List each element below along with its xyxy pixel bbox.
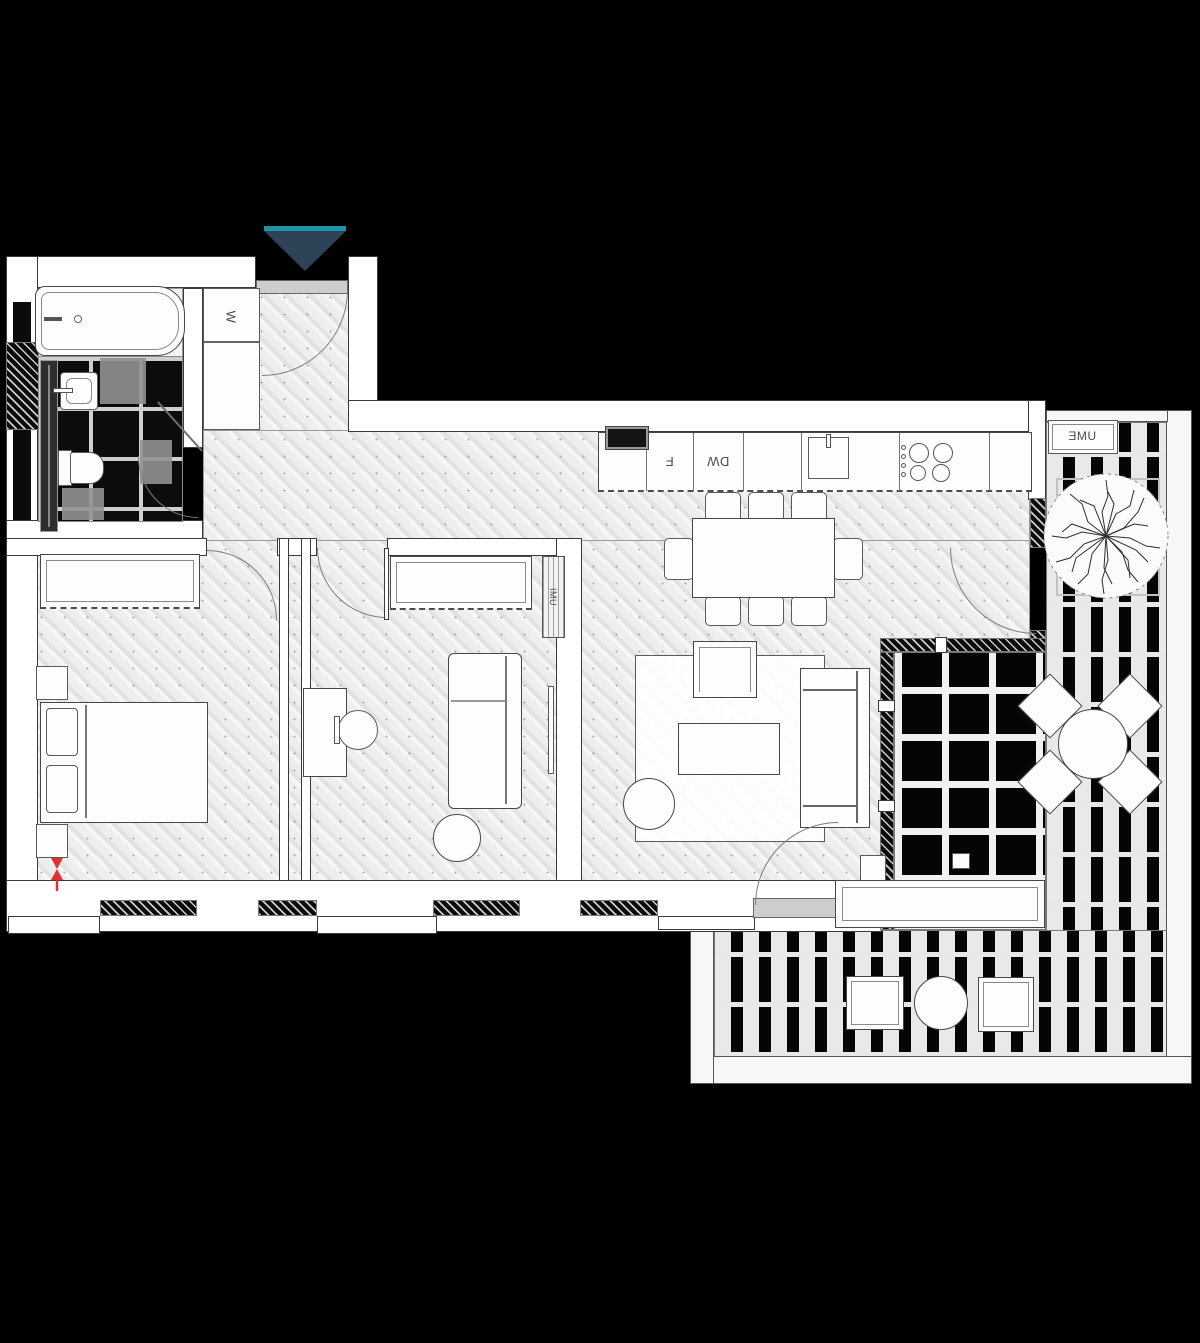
counter-divider: [743, 433, 744, 491]
fridge-label: F: [646, 441, 693, 483]
sofa: [800, 668, 870, 828]
bathroom-gray-tile: [100, 358, 146, 404]
nightstand: [36, 824, 68, 858]
glazing-living-south: [880, 638, 1046, 652]
cooktop-burner: [909, 443, 929, 463]
bolster-line: [505, 656, 507, 804]
kitchen-faucet-icon: [826, 434, 831, 448]
bathroom-sink: [60, 372, 98, 410]
dishwasher-label: DW: [693, 441, 743, 483]
kitchen-sink: [808, 437, 849, 479]
cooktop-knob: [901, 445, 906, 450]
sill-bottom-3: [658, 916, 755, 930]
cooktop-knob: [901, 454, 906, 459]
duct-label: IMU: [543, 577, 563, 617]
single-bed: [448, 653, 522, 809]
pouf: [433, 814, 481, 862]
dining-chair: [748, 596, 784, 626]
closet-label: W: [210, 290, 254, 345]
sofa-armrest-line: [803, 805, 856, 807]
bench-support: [952, 853, 970, 869]
counter-divider: [801, 433, 802, 491]
bedroom2-door-leaf: [384, 548, 389, 620]
bathtub-faucet-icon: [44, 317, 62, 321]
desk-chair-back: [334, 716, 340, 744]
double-bed: [40, 702, 208, 823]
ume-label: UME: [1049, 421, 1115, 451]
sill-bottom-2: [317, 916, 437, 934]
sink-faucet-icon: [53, 388, 73, 393]
counter-divider: [989, 433, 990, 491]
window-left: [6, 342, 40, 430]
terrace-stool: [846, 976, 904, 1030]
entry-arrow-icon: [264, 231, 346, 271]
dining-chair: [664, 538, 694, 580]
cooktop-burner: [933, 443, 953, 463]
mullion-2: [878, 800, 895, 812]
towel-radiator-line: [48, 365, 50, 527]
dining-table: [692, 518, 835, 598]
wall-bedroom-divider-left: [279, 538, 289, 908]
kitchen-counter: F DW: [598, 432, 1032, 492]
coffee-table: [678, 723, 780, 775]
sofa-backrest-line: [856, 671, 858, 823]
terrace-low-table: [914, 976, 968, 1030]
wall-top-left: [6, 256, 256, 288]
hall-closet: W: [203, 288, 260, 430]
mullion-1: [878, 700, 895, 712]
cooktop-burner: [932, 464, 950, 482]
glazing-terrace-upper: [1030, 498, 1046, 548]
towel-radiator: [40, 360, 58, 532]
wall-bathroom-right-upper: [183, 288, 203, 448]
duct-shaft: IMU: [542, 556, 565, 638]
wall-kitchen-top: [348, 400, 1045, 432]
counter-divider: [899, 433, 900, 491]
dining-chair: [791, 596, 827, 626]
window-bottom-4: [580, 900, 658, 916]
mattress-line: [451, 700, 505, 702]
bedroom1-wardrobe: [40, 554, 200, 609]
side-table: [623, 778, 675, 830]
kitchen-hood-box: [606, 427, 648, 449]
sofa-armrest-line: [803, 689, 856, 691]
dining-chair: [705, 596, 741, 626]
bench-support: [860, 855, 886, 881]
pillow: [46, 765, 78, 813]
cooktop-knob: [901, 472, 906, 477]
duvet-line: [85, 705, 87, 818]
ume-unit-box: UME: [1048, 420, 1118, 454]
floor-plan: W F DW: [0, 0, 1200, 1343]
bathtub-rim: [41, 292, 179, 350]
bathroom-gray-tile: [62, 488, 104, 520]
wall-bedroom2-top: [387, 538, 580, 556]
cooktop-knob: [901, 463, 906, 468]
dining-chair: [833, 538, 863, 580]
armchair: [693, 641, 757, 698]
mullion-3: [935, 637, 947, 653]
terrace-parapet-right: [1166, 410, 1192, 1084]
sill-bottom-1: [8, 916, 100, 934]
bathtub-drain: [74, 315, 82, 323]
desk-chair: [338, 710, 378, 750]
window-bottom-1: [100, 900, 197, 916]
cooktop-burner: [910, 465, 926, 481]
tree-trellis: [1056, 478, 1160, 596]
toilet-bowl: [70, 452, 104, 484]
mirror: [548, 686, 554, 774]
window-bottom-2: [258, 900, 317, 916]
terrace-parapet-bottom: [690, 1056, 1192, 1084]
terrace-round-table: [1058, 709, 1128, 779]
window-bottom-3: [433, 900, 520, 916]
terrace-bench: [835, 880, 1045, 928]
nightstand: [36, 666, 68, 700]
bedroom2-wardrobe: [390, 556, 532, 610]
terrace-parapet-left: [690, 928, 714, 1084]
bathtub: [35, 286, 185, 356]
pillow: [46, 708, 78, 756]
terrace-stool: [978, 977, 1034, 1032]
